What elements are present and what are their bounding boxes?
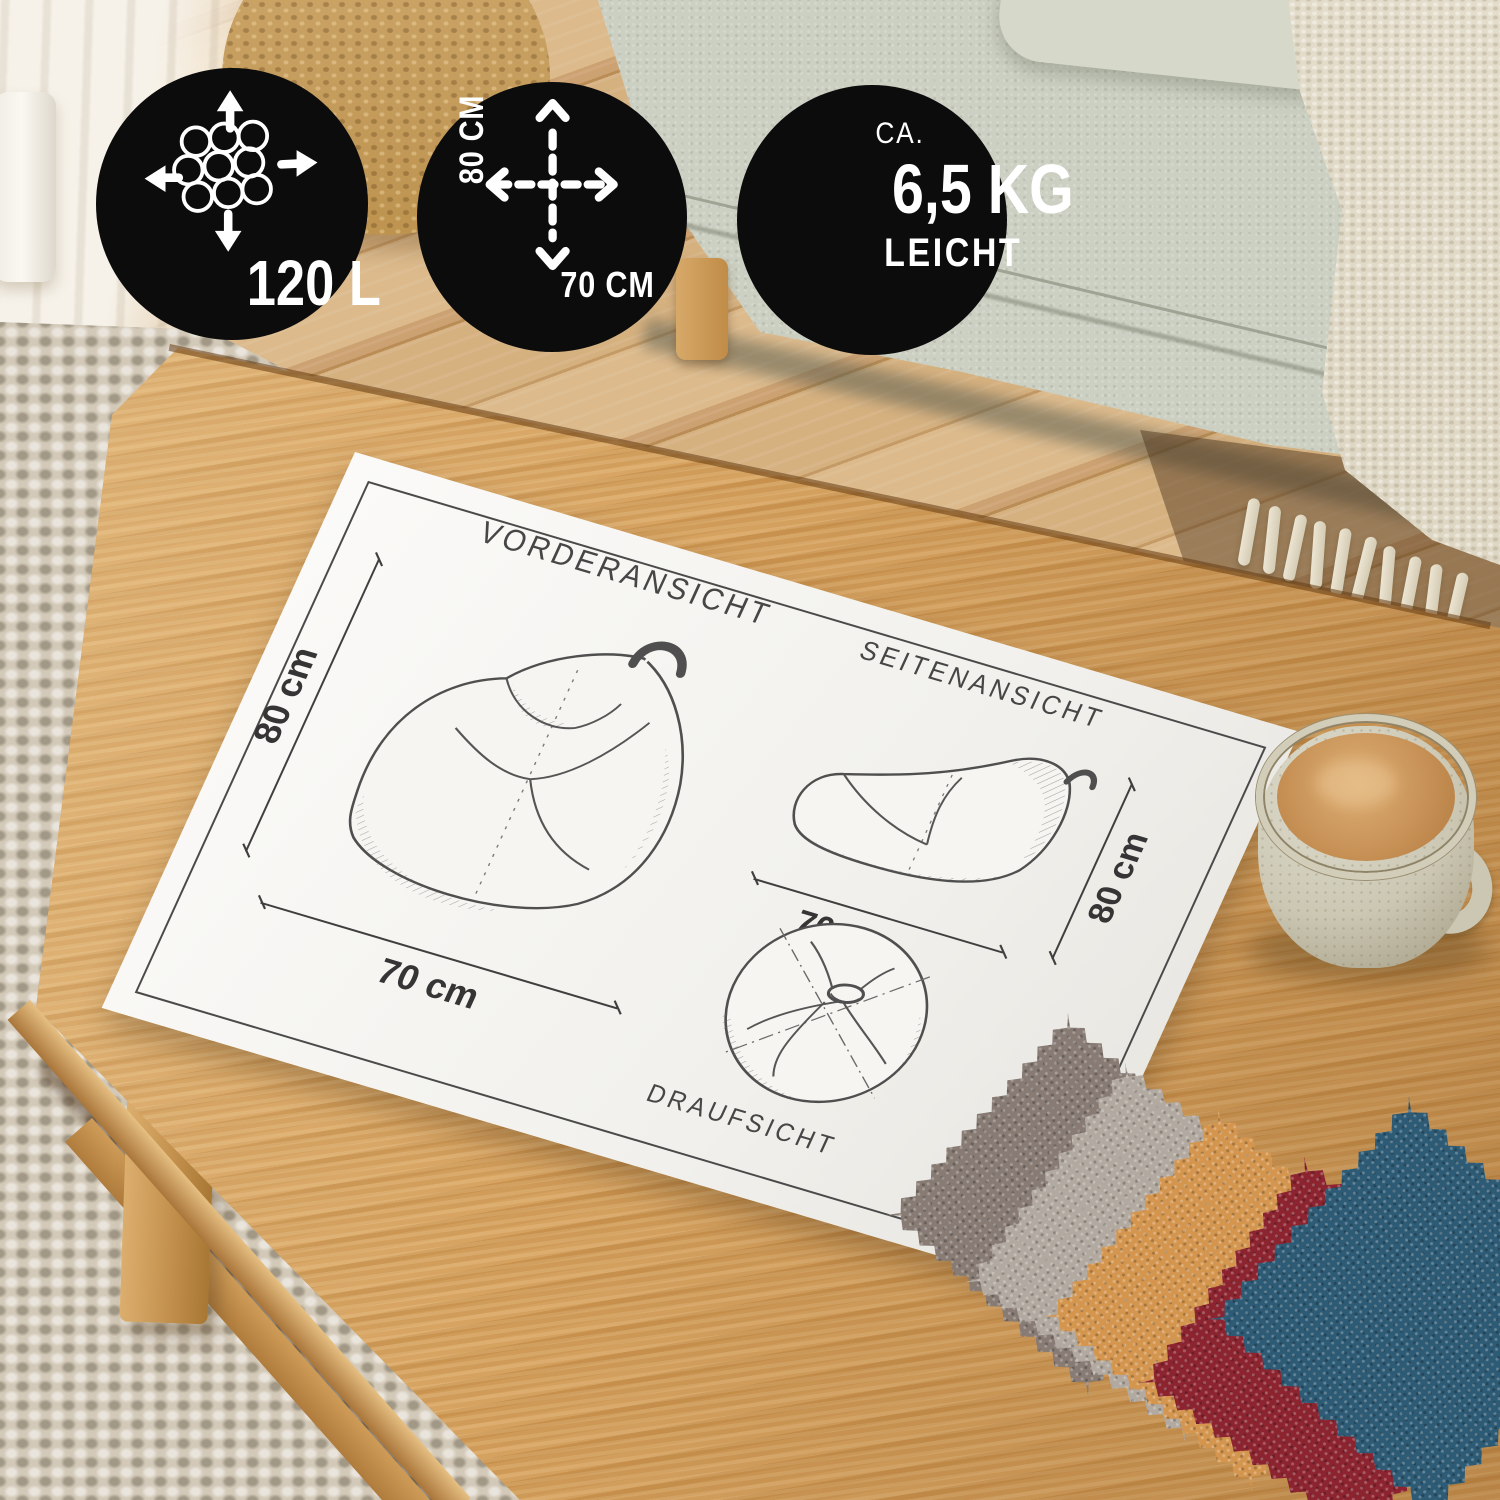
filling-beads-expand-icon xyxy=(137,86,327,258)
dimensions-badge: 80 CM 70 CM xyxy=(417,82,687,352)
living-room-product-scene: VORDERANSICHT 80 cm 70 cm S xyxy=(0,0,1500,1500)
capacity-badge: 120 L xyxy=(96,68,368,340)
coffee-swirl xyxy=(1316,759,1396,807)
coffee-mug xyxy=(1256,714,1482,974)
weight-badge: CA. 6,5 KG LEICHT xyxy=(737,85,1007,355)
sofa-leg xyxy=(676,258,728,360)
pillar-candle xyxy=(0,92,56,282)
